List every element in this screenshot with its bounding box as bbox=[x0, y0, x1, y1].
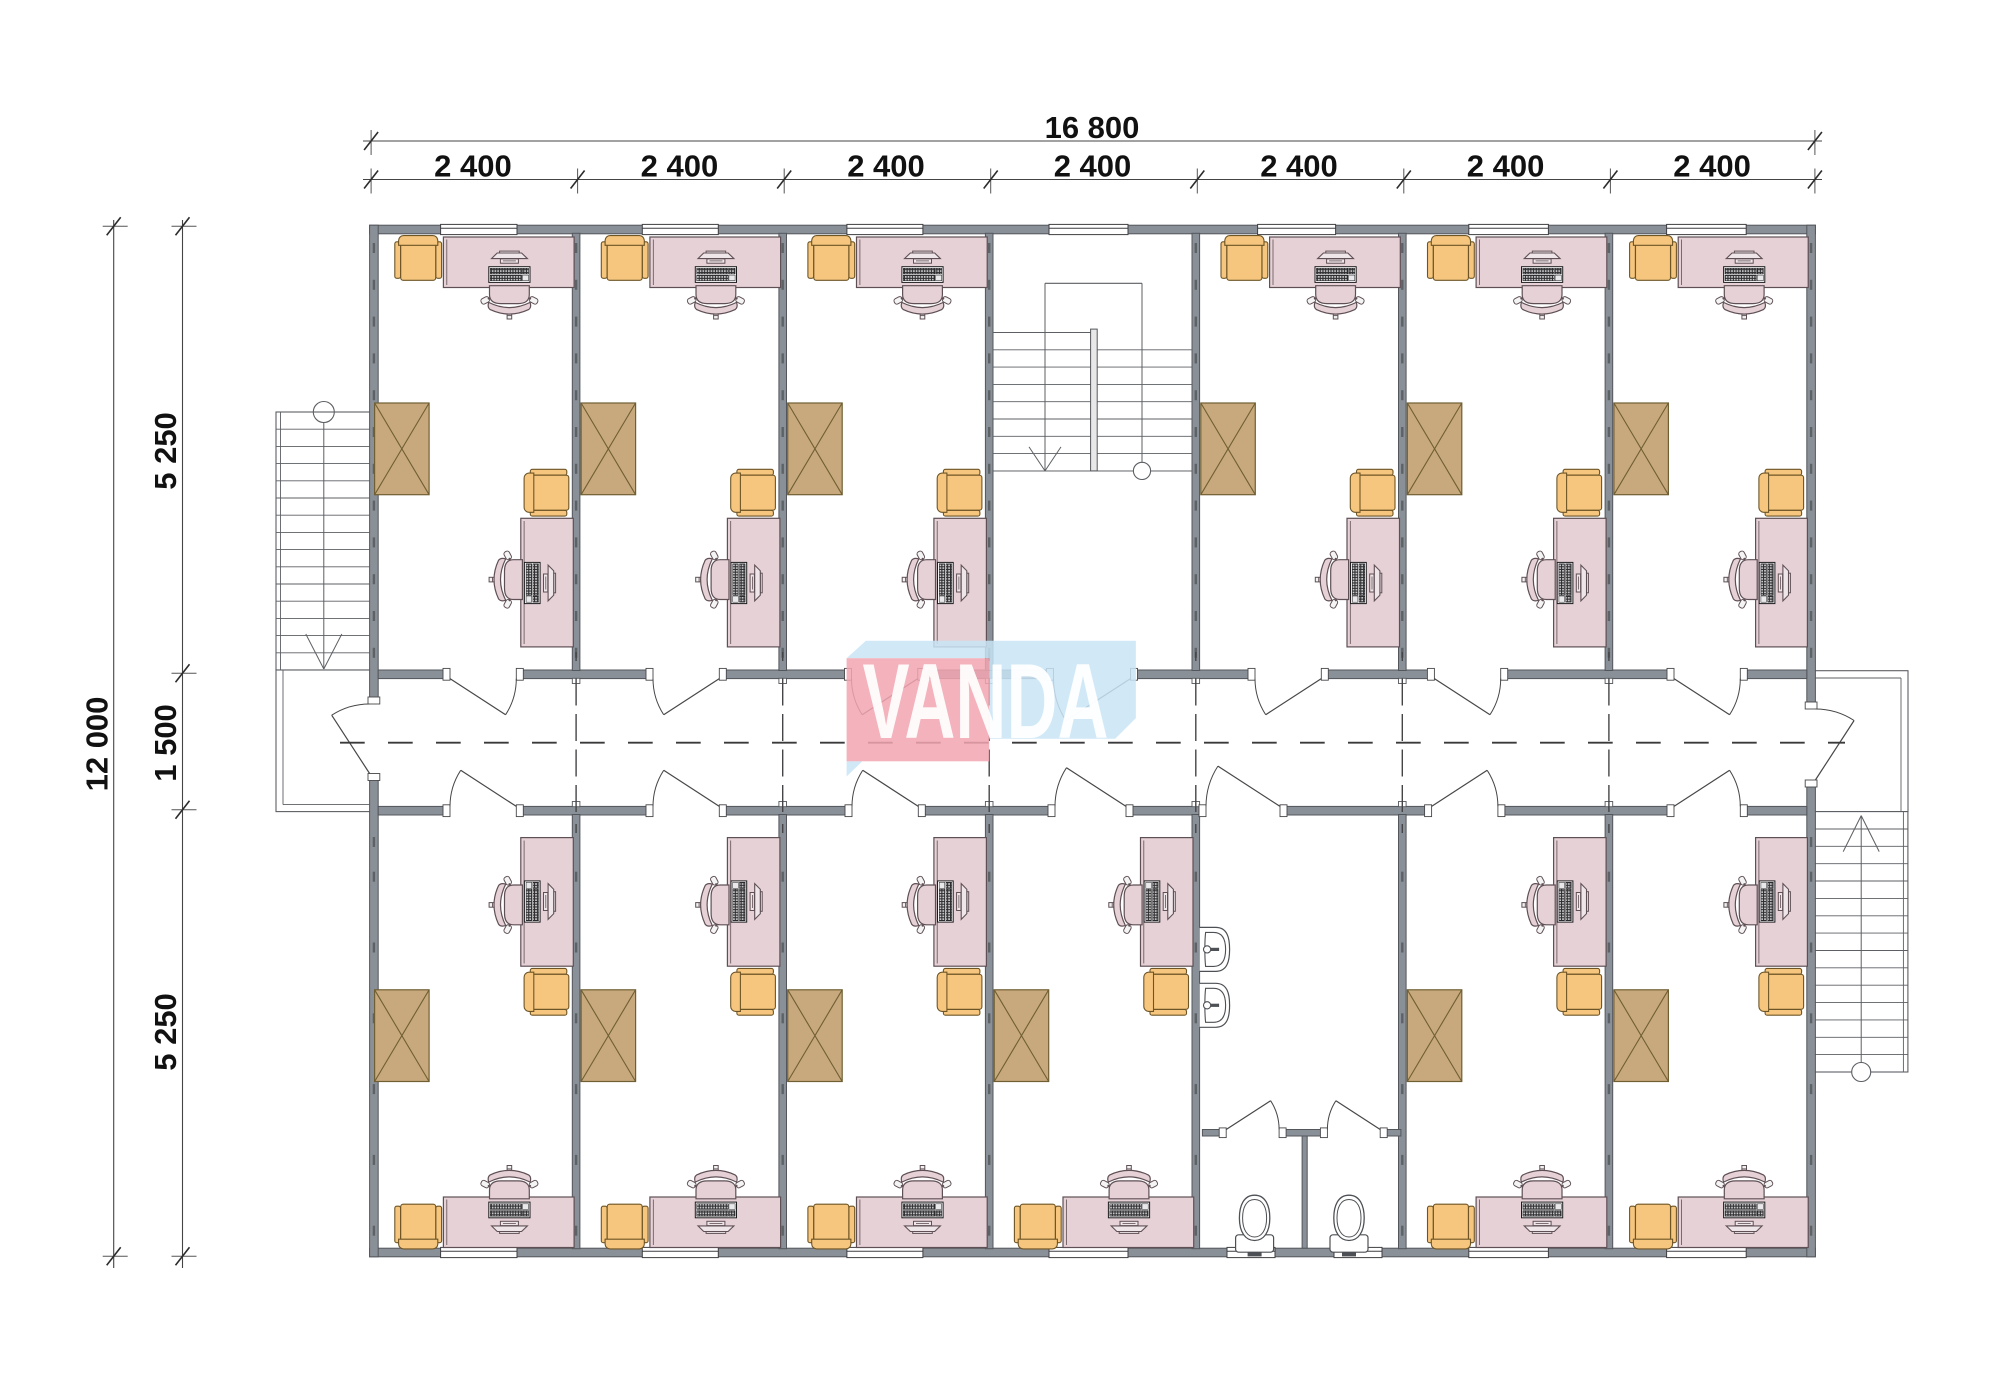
svg-text:12 000: 12 000 bbox=[80, 697, 115, 792]
svg-text:2 400: 2 400 bbox=[847, 149, 925, 184]
svg-text:2 400: 2 400 bbox=[434, 149, 512, 184]
svg-text:5 250: 5 250 bbox=[148, 412, 183, 490]
svg-text:2 400: 2 400 bbox=[1673, 149, 1751, 184]
svg-text:16 800: 16 800 bbox=[1045, 110, 1140, 145]
svg-text:5 250: 5 250 bbox=[148, 993, 183, 1071]
svg-text:2 400: 2 400 bbox=[1260, 149, 1338, 184]
svg-text:VANDA: VANDA bbox=[863, 641, 1109, 761]
svg-text:2 400: 2 400 bbox=[641, 149, 719, 184]
svg-text:2 400: 2 400 bbox=[1054, 149, 1132, 184]
svg-text:1 500: 1 500 bbox=[148, 704, 183, 782]
svg-text:2 400: 2 400 bbox=[1467, 149, 1545, 184]
